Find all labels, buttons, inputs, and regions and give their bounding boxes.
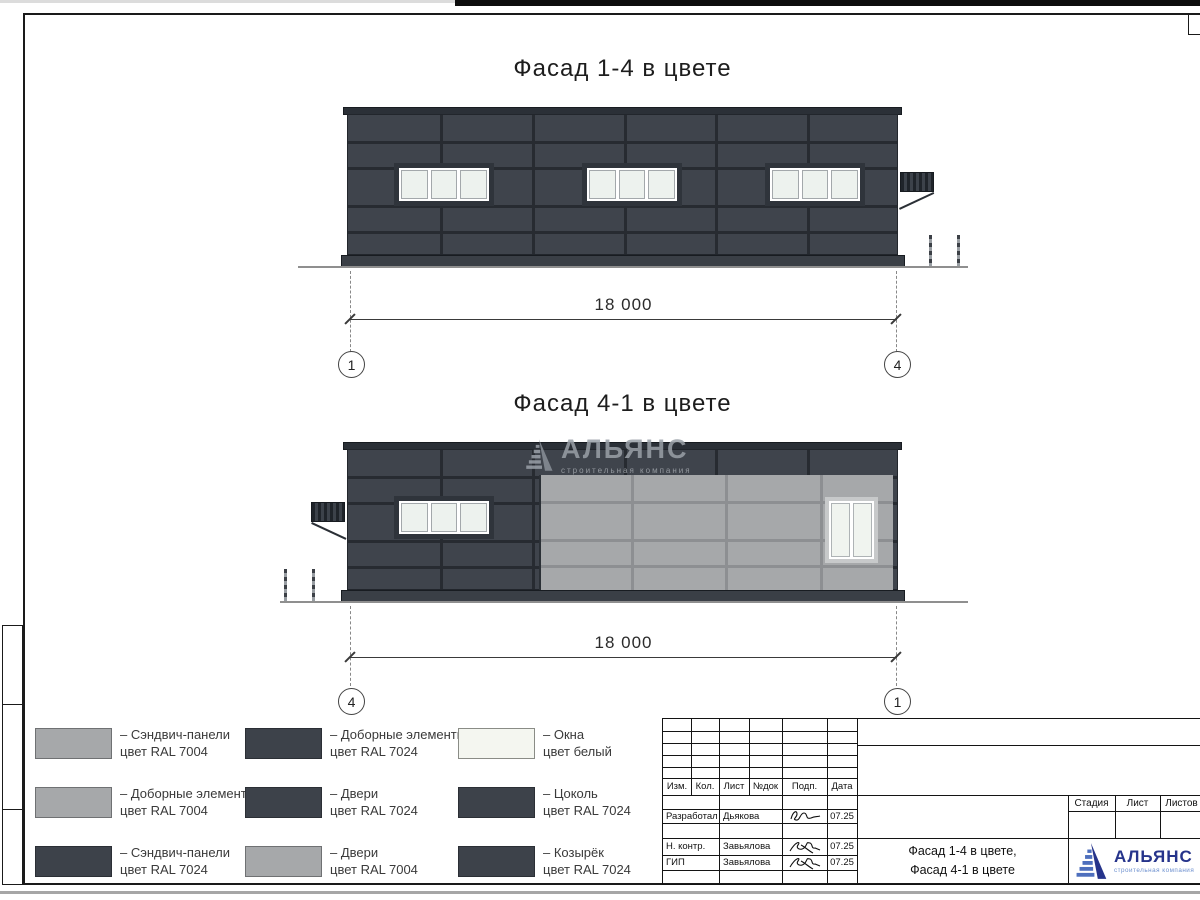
legend-line: – Сэндвич-панели [120,727,260,744]
logo-text: АЛЬЯНС строительная компания [1114,848,1194,874]
window-pane [460,170,487,199]
window [765,163,865,206]
legend-line: цвет RAL 7024 [330,803,470,820]
window-white [825,497,878,563]
legend-label: – Сэндвич-панели цвет RAL 7004 [120,727,260,761]
legend-line: – Двери [330,845,470,862]
axis-bubble-1: 1 [338,351,365,378]
margin-box-divider [3,704,22,705]
list-header: Лист [1115,795,1160,811]
frame-corner-box [1188,14,1200,35]
signer-date: 07.25 [827,838,857,855]
window-pane [772,170,799,199]
dimension-label: 18 000 [350,295,897,315]
stamp-grid-line [663,870,857,871]
facade-4-1-title: Фасад 4-1 в цвете [347,390,898,418]
legend-swatch [245,787,322,818]
legend-swatch [458,728,535,759]
legend-label: – Доборные элементы цвет RAL 7004 [120,786,260,820]
panel-joint [348,141,897,144]
signer-role: ГИП [664,855,721,870]
left-margin-boxes [2,625,23,885]
panel-joint [541,565,893,568]
stamp-grid-line [663,755,857,756]
logo-brand: АЛЬЯНС [1114,848,1194,865]
panel-joint [725,475,728,590]
panel-joint [348,231,897,234]
doc-title-line2: Фасад 4-1 в цвете [910,861,1015,880]
rev-header-list: Лист [719,778,749,795]
panel-joint [631,475,634,590]
legend-line: цвет RAL 7004 [330,862,470,879]
signature-icon [784,854,826,870]
post [929,235,932,268]
window [394,496,494,539]
rev-header-ndok: №док [749,778,782,795]
drawing-sheet: { "facade_top": { "title": "Фасад 1-4 в … [0,0,1200,900]
stamp-grid-line [663,795,857,796]
window-pane [460,503,487,532]
signer-role: Разработал [664,809,721,823]
window-pane [853,503,872,557]
stamp-grid-line [663,743,857,744]
title-block: Изм. Кол. Лист №док Подп. Дата Разработа… [662,718,1200,885]
legend-label: – Двери цвет RAL 7004 [330,845,470,879]
legend-label: – Сэндвич-панели цвет RAL 7024 [120,845,260,879]
dimension-label: 18 000 [350,633,897,653]
legend-swatch [458,846,535,877]
stamp-grid-line [663,823,857,824]
axis-bubble-4: 4 [338,688,365,715]
window-pane [401,503,428,532]
legend-line: цвет RAL 7004 [120,744,260,761]
company-logo: АЛЬЯНС строительная компания [1068,838,1200,883]
watermark-tagline: строительная компания [561,466,692,475]
post [312,569,315,602]
legend-swatch [35,728,112,759]
dimension-line [350,319,897,320]
window-pane [431,170,458,199]
rev-header-podp: Подп. [782,778,827,795]
doc-title-line1: Фасад 1-4 в цвете, [908,842,1016,861]
logo-tagline: строительная компания [1114,867,1194,874]
pyramid-logo-icon [524,436,554,474]
window [394,163,494,206]
doc-title: Фасад 1-4 в цвете, Фасад 4-1 в цвете [857,838,1068,883]
post [957,235,960,268]
legend-swatch [245,846,322,877]
signature-icon [784,838,826,855]
window [582,163,682,206]
dimension-line [350,657,897,658]
watermark: АЛЬЯНС строительная компания [524,436,692,475]
watermark-brand: АЛЬЯНС [561,436,692,463]
signer-date: 07.25 [827,855,857,870]
facade-1-4-title: Фасад 1-4 в цвете [347,55,898,83]
axis-bubble-4: 4 [884,351,911,378]
background-strip [0,0,455,3]
window-pane [831,503,850,557]
watermark-text: АЛЬЯНС строительная компания [561,436,692,475]
pyramid-logo-icon [1074,841,1108,881]
rev-header-kol: Кол. [691,778,719,795]
legend-swatch [35,787,112,818]
legend-line: цвет RAL 7024 [330,744,470,761]
margin-box-divider [3,809,22,810]
window-pane [619,170,646,199]
window-pane [431,503,458,532]
stage-header: Стадия [1068,795,1115,811]
legend-label: – Доборные элементы цвет RAL 7024 [330,727,470,761]
legend-swatch [35,846,112,877]
window-pane [802,170,829,199]
signer-role: Н. контр. [664,838,721,855]
rev-header-izm: Изм. [663,778,691,795]
top-black-bar [455,0,1200,6]
stamp-grid-line [663,731,857,732]
stamp-grid-line [663,767,857,768]
canopy [311,502,345,522]
axis-bubble-1: 1 [884,688,911,715]
post [284,569,287,602]
legend-line: цвет RAL 7004 [120,803,260,820]
window-pane [589,170,616,199]
legend-swatch [458,787,535,818]
legend-swatch [245,728,322,759]
window-pane [831,170,858,199]
legend-line: – Двери [330,786,470,803]
legend-label: – Двери цвет RAL 7024 [330,786,470,820]
window-pane [648,170,675,199]
window-pane [401,170,428,199]
legend-line: – Доборные элементы [120,786,260,803]
ground-line [280,601,968,603]
signer-name: Дьякова [721,809,783,823]
signer-name: Завьялова [721,838,783,855]
signer-date: 07.25 [827,809,857,823]
legend-line: – Доборные элементы [330,727,470,744]
stamp-grid-line [1068,811,1200,812]
canopy [900,172,934,192]
ground-line [298,266,968,268]
legend-line: цвет RAL 7024 [120,862,260,879]
panel-joint [820,475,823,590]
listov-header: Листов [1160,795,1200,811]
legend-line: – Сэндвич-панели [120,845,260,862]
rev-header-data: Дата [827,778,857,795]
sheet-bottom-edge [0,891,1200,894]
signer-name: Завьялова [721,855,783,870]
stamp-grid-line [857,745,1200,746]
signature-icon [784,807,826,824]
